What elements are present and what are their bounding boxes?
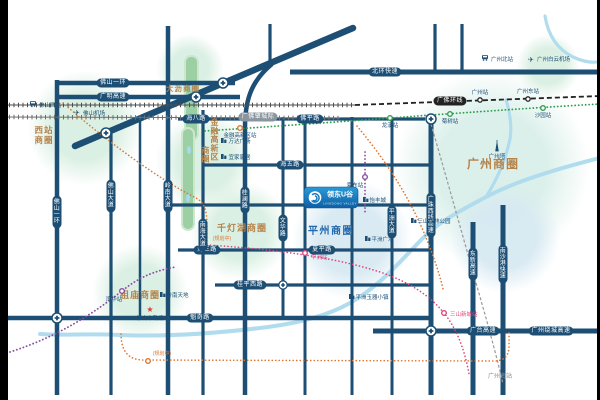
road-label-foshan-ring: 佛山一环 xyxy=(97,78,130,88)
metro-station-icon xyxy=(238,126,243,131)
svg-text:万达广场: 万达广场 xyxy=(229,137,252,145)
road-label-nanshagang: 南沙港快速 xyxy=(499,245,508,284)
road-label-beihuan: 北环快速 xyxy=(369,67,402,77)
logo-tagline: LINGDONG VALLEY xyxy=(323,202,357,206)
train-icon xyxy=(482,55,488,61)
district-label-xizhan-2: 商圈 xyxy=(34,135,53,145)
road-label-haiba: 海八路 xyxy=(183,114,210,124)
road-label-guangzhuxi: 广珠西线高速 xyxy=(427,193,436,238)
road-label-wenhua: 文华路 xyxy=(279,215,288,242)
svg-text:广佛环线: 广佛环线 xyxy=(437,96,463,104)
svg-text:岭南天地: 岭南天地 xyxy=(167,291,190,299)
road-label-guangtai: 广台高速 xyxy=(467,326,500,336)
svg-text:三山森林公园: 三山森林公园 xyxy=(418,217,452,225)
metro-station-icon xyxy=(303,251,308,256)
svg-text:平洲站: 平洲站 xyxy=(311,253,328,261)
poi-sanshan-park: 三山森林公园 xyxy=(411,217,451,225)
svg-text:广州站: 广州站 xyxy=(472,88,489,96)
road-label-lingnan-ave: 岭南大道 xyxy=(164,180,173,213)
svg-text:文华路: 文华路 xyxy=(280,217,287,238)
district-label-xizhan-1: 西站 xyxy=(34,125,53,135)
poi-jade-town: 平洲玉器小镇 xyxy=(349,293,389,301)
svg-text:广州南站: 广州南站 xyxy=(488,372,512,380)
svg-text:广州北站: 广州北站 xyxy=(491,55,514,63)
svg-text:怡丰城: 怡丰城 xyxy=(370,196,387,204)
svg-text:佛山机场: 佛山机场 xyxy=(83,109,106,117)
svg-text:海五路: 海五路 xyxy=(280,160,300,168)
svg-text:广佛肇城际: 广佛肇城际 xyxy=(242,112,275,120)
road-label-xiaping: 夏平路 xyxy=(309,245,336,255)
logo-name: 领东U谷 xyxy=(327,190,354,199)
svg-text:广明高速: 广明高速 xyxy=(100,92,126,100)
svg-text:(规划中): (规划中) xyxy=(153,350,172,357)
sanshan-xincheng-station: 三山新城站 xyxy=(442,310,478,318)
svg-text:佛山一环: 佛山一环 xyxy=(54,198,61,225)
metro-station-icon xyxy=(442,311,447,316)
svg-text:三山新城站: 三山新城站 xyxy=(450,310,478,318)
svg-text:龙溪站: 龙溪站 xyxy=(382,121,399,129)
district-label-zumiao: 祖庙商圈 xyxy=(119,289,160,300)
rail-label-guangfohuan: 广佛环线 xyxy=(434,96,467,106)
svg-text:广州白云机场: 广州白云机场 xyxy=(537,55,571,63)
star-icon: ★ xyxy=(146,305,153,314)
svg-text:桂平西路: 桂平西路 xyxy=(237,280,263,288)
guangzhou-south-station: 广州南站 xyxy=(488,372,512,380)
plane-icon: ✈ xyxy=(528,57,534,64)
district-label-dali: 大沥商圈 xyxy=(166,83,200,93)
svg-text:平洲玉器小镇: 平洲玉器小镇 xyxy=(356,293,390,301)
svg-text:岭南大道: 岭南大道 xyxy=(165,182,172,209)
road-label-foshan-ring-text: 佛山一环 xyxy=(100,78,126,86)
road-label-foping: 佛平路 xyxy=(297,114,324,124)
svg-text:宜家家居: 宜家家居 xyxy=(229,153,252,161)
road-label-haiwu: 海五路 xyxy=(277,160,304,170)
svg-text:南海大道: 南海大道 xyxy=(200,221,207,248)
rail-station-dot xyxy=(526,97,530,101)
map-canvas: 佛山一环 广明高速 北环快速 海八路 佛平路 海五路 海三路 夏平路 桂平西路 … xyxy=(0,0,600,400)
svg-text:广州绕城高速: 广州绕城高速 xyxy=(531,326,570,334)
svg-text:佛山市政府: 佛山市政府 xyxy=(136,314,164,322)
road-label-pingzhou-ave: 平洲大道 xyxy=(388,206,397,239)
svg-text:魁奇路: 魁奇路 xyxy=(190,313,210,321)
svg-text:北环快速: 北环快速 xyxy=(372,67,398,75)
district-label-qiandenghu: 千灯湖商圈 xyxy=(217,222,267,233)
foshan-airport: ✈佛山机场 xyxy=(74,109,106,117)
location-map[interactable]: 佛山一环 广明高速 北环快速 海八路 佛平路 海五路 海三路 夏平路 桂平西路 … xyxy=(0,0,600,400)
metro-station-icon xyxy=(120,289,125,294)
road-label-raocheng: 广州绕城高速 xyxy=(529,326,574,336)
road-label-guipingxi: 桂平西路 xyxy=(234,280,267,290)
svg-text:南沙港快速: 南沙港快速 xyxy=(500,246,507,279)
svg-text:金融高新区站: 金融高新区站 xyxy=(223,131,257,139)
svg-text:平洲大道: 平洲大道 xyxy=(389,209,396,235)
svg-text:佛平路: 佛平路 xyxy=(300,114,320,122)
svg-text:东新高速: 东新高速 xyxy=(470,250,477,277)
metro-station-icon xyxy=(388,116,393,121)
svg-text:桂澜路: 桂澜路 xyxy=(242,189,249,210)
svg-text:沙园站: 沙园站 xyxy=(535,111,552,119)
svg-text:广珠西线高速: 广珠西线高速 xyxy=(428,194,435,234)
district-label-jinrong: 金融高新区 xyxy=(210,117,220,161)
road-label-guilan: 桂澜路 xyxy=(241,187,250,214)
road-label-foshan-ring-v: 佛山一环 xyxy=(53,196,62,229)
planned-note-1: (规划中) xyxy=(213,235,232,242)
metro-station-icon xyxy=(448,112,453,117)
svg-text:菊树站: 菊树站 xyxy=(442,117,459,125)
left-edge-bar xyxy=(0,0,8,400)
guangzhou-north-station: 广州北站 xyxy=(482,55,514,63)
svg-text:(规划中): (规划中) xyxy=(213,235,232,242)
rail-label-guangfozhao: 广佛肇城际 xyxy=(239,112,278,122)
road-label-foshan-ave: 佛山大道 xyxy=(107,180,116,213)
project-logo: 领东U谷 LINGDONG VALLEY xyxy=(304,187,358,208)
svg-text:平洲广场: 平洲广场 xyxy=(372,235,395,243)
svg-text:佛山西站: 佛山西站 xyxy=(39,101,62,109)
plane-icon: ✈ xyxy=(74,110,80,117)
svg-text:海八路: 海八路 xyxy=(186,114,206,122)
svg-text:湾华站: 湾华站 xyxy=(106,295,123,303)
road-label-kuiqi: 魁奇路 xyxy=(187,313,214,323)
svg-text:佛山大道: 佛山大道 xyxy=(108,182,115,209)
rail-station-dot xyxy=(478,98,482,102)
svg-text:广州东站: 广州东站 xyxy=(517,87,540,95)
district-label-pingzhou: 平州商圈 xyxy=(308,224,354,237)
road-label-guangming: 广明高速 xyxy=(97,92,130,102)
svg-text:夏平路: 夏平路 xyxy=(312,245,332,253)
svg-text:广台高速: 广台高速 xyxy=(470,326,496,334)
metro-station-icon xyxy=(541,106,546,111)
metro-station-icon xyxy=(146,359,151,364)
road-label-nanhai-ave: 南海大道 xyxy=(199,219,208,252)
road-label-dongxin: 东新高速 xyxy=(469,248,478,281)
svg-text:广州塔: 广州塔 xyxy=(489,152,506,160)
metro-station-icon xyxy=(363,175,368,180)
district-label-jinrong-suffix: 商圈 xyxy=(202,145,211,164)
